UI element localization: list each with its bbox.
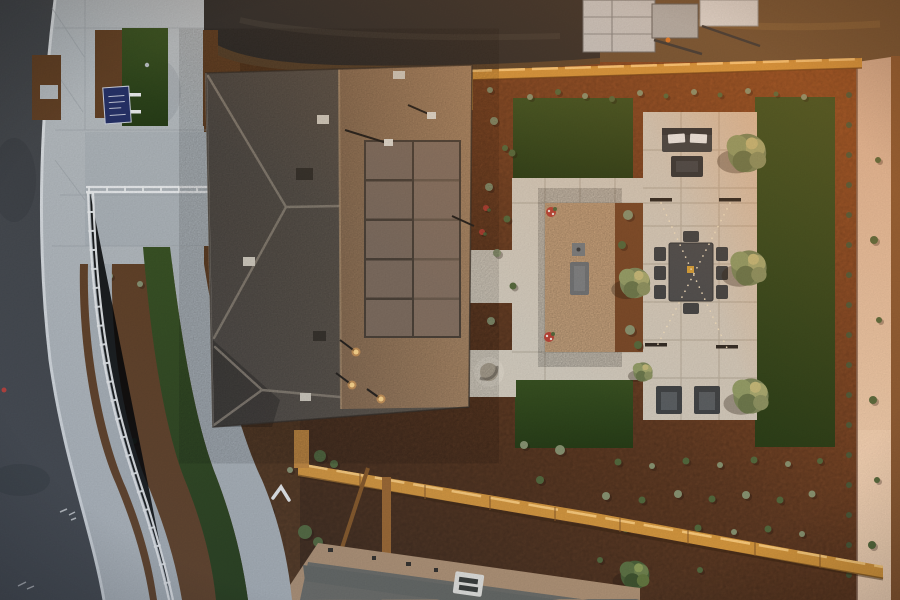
scene-canvas (0, 0, 900, 600)
aerial-photo (0, 0, 900, 600)
vignette (0, 0, 900, 600)
